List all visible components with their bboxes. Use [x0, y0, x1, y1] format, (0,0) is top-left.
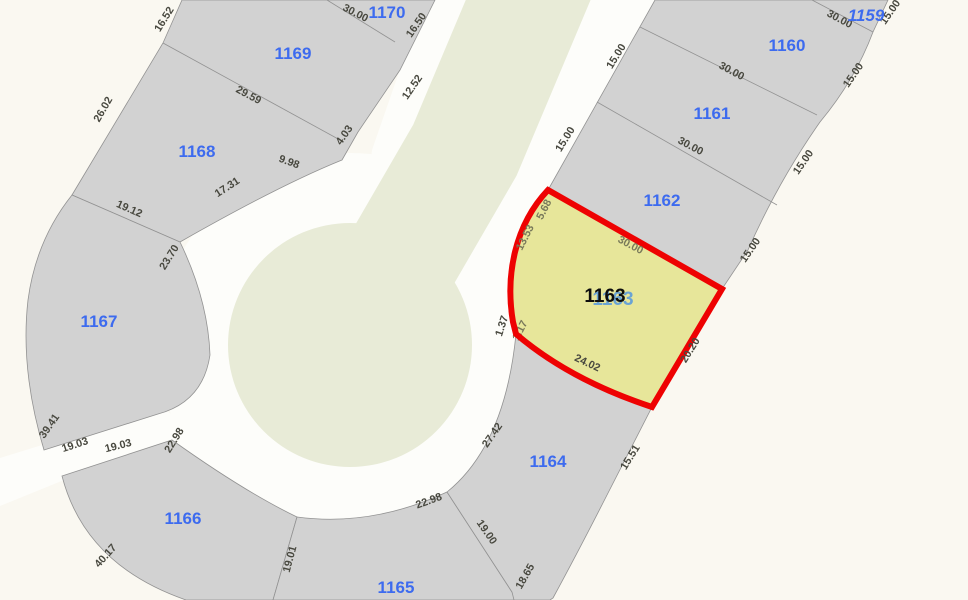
parcel-label-1166: 1166 [165, 509, 202, 528]
map-canvas[interactable]: 1.17 1163 1163 16.52 30.00 16.50 12.52 2… [0, 0, 968, 600]
parcel-label-1165: 1165 [378, 578, 415, 597]
parcel-label-1164: 1164 [530, 452, 567, 471]
parcel-label-1170: 1170 [369, 3, 406, 22]
parcel-label-1162: 1162 [644, 191, 681, 210]
parcel-label-1160: 1160 [769, 36, 806, 55]
parcel-label-1161: 1161 [694, 104, 731, 123]
parcel-label-1163: 1163 [584, 286, 625, 307]
parcel-label-1169: 1169 [275, 44, 312, 63]
parcel-label-1168: 1168 [179, 142, 216, 161]
parcel-label-1159: 1159 [848, 6, 885, 25]
culdesac-island [228, 223, 472, 467]
parcel-label-1167: 1167 [81, 312, 118, 331]
